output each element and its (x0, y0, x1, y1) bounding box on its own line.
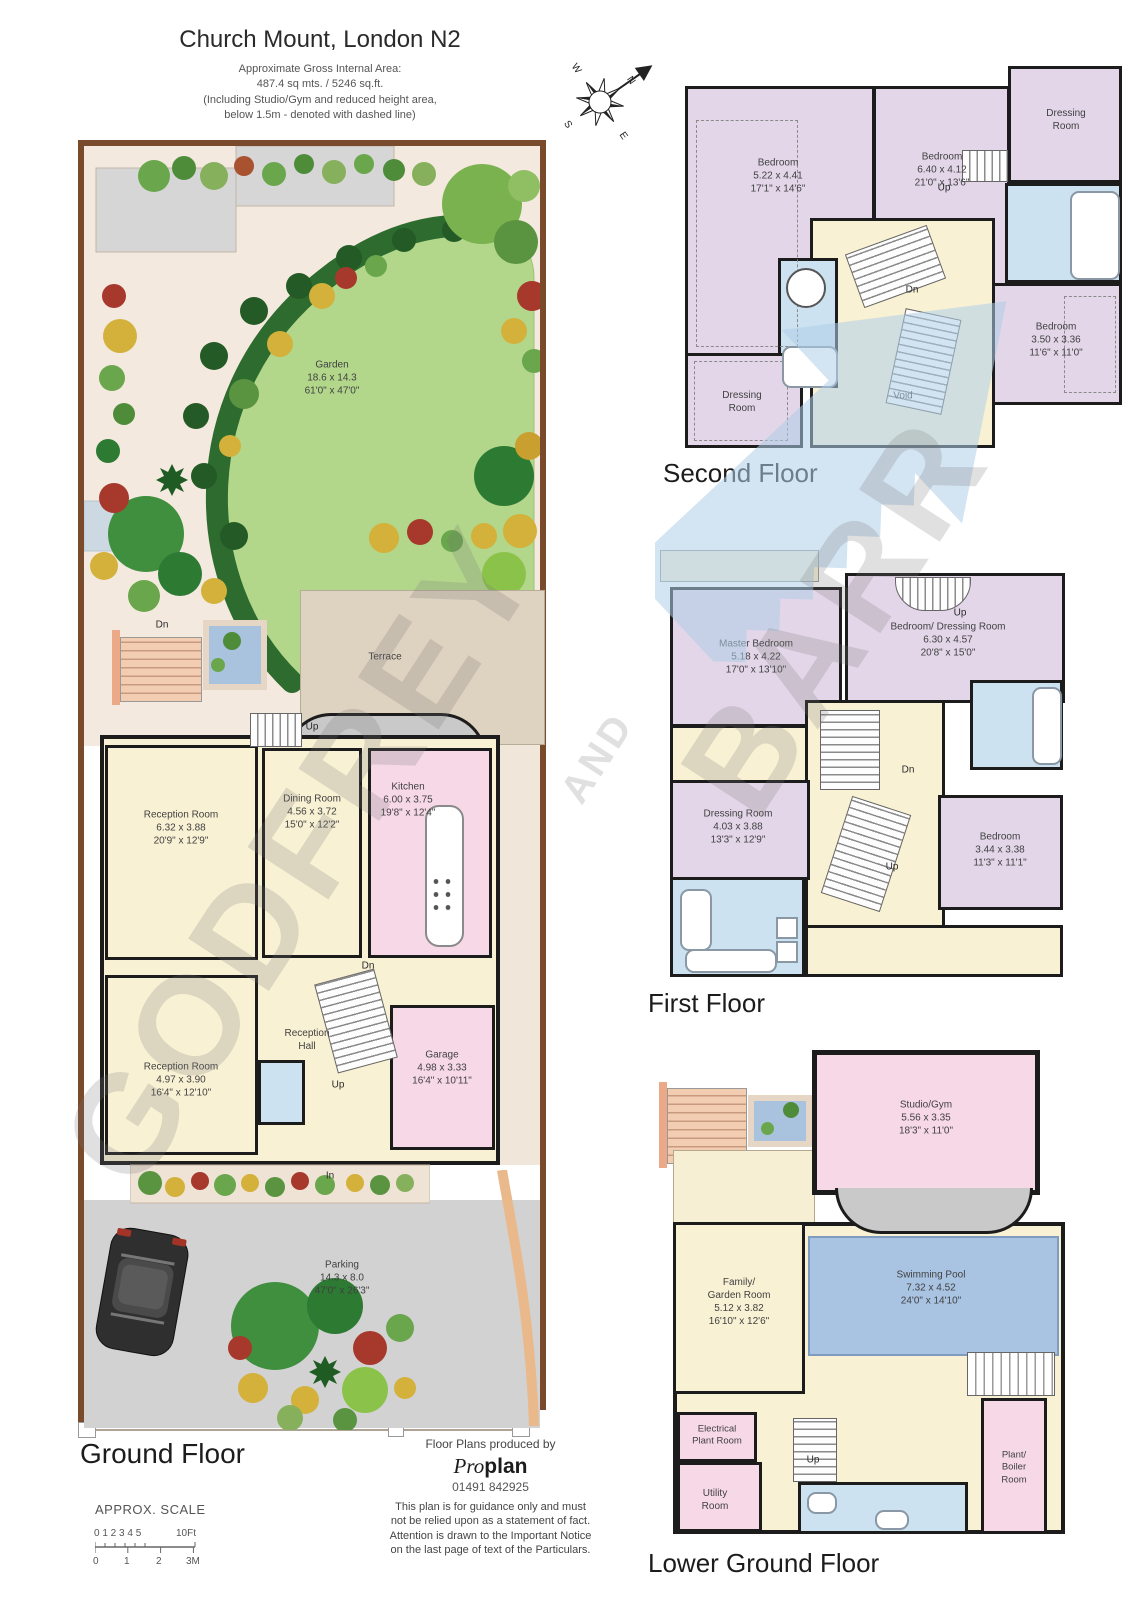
page-title: Church Mount, London N2 (140, 26, 500, 54)
bathtub-icon (782, 346, 838, 388)
room-label: Studio/Gym 5.56 x 3.35 18'3" x 11'0" (899, 1099, 953, 1138)
room-label: Bedroom 3.44 x 3.38 11'3" x 11'1" (973, 831, 1026, 870)
ground-floor-plan: Garden 18.6 x 14.3 61'0" x 47'0" Terrace… (78, 140, 546, 1438)
in-label: In (326, 1171, 334, 1182)
house-steps (250, 713, 302, 747)
spiral-stair-icon (786, 268, 826, 308)
hob-icon (430, 875, 456, 913)
room-label: Garage 4.98 x 3.33 16'4" x 10'11" (412, 1049, 472, 1088)
compass-s-label: S (561, 119, 574, 131)
room-label: Reception Room 4.97 x 3.90 16'4" x 12'10… (144, 1061, 218, 1100)
room-label: Dressing Room 4.03 x 3.88 13'3" x 12'9" (704, 808, 773, 847)
room-label: Swimming Pool 7.32 x 4.52 24'0" x 14'10" (897, 1269, 966, 1308)
floorplan-sheet: Church Mount, London N2 Approximate Gros… (0, 0, 1140, 1613)
up-label: Up (332, 1080, 345, 1091)
lower-ground-floor-plan: Studio/Gym 5.56 x 3.35 18'3" x 11'0" Fam… (645, 1040, 1065, 1545)
light-well-plant (223, 632, 241, 650)
page-subtitle: Approximate Gross Internal Area: 487.4 s… (140, 62, 500, 124)
footer-credits: Floor Plans produced by Proplan 01491 84… (368, 1437, 613, 1557)
reduced-height-line (696, 120, 798, 347)
ground-floor-label: Ground Floor (80, 1438, 245, 1470)
light-well (748, 1095, 812, 1147)
second-floor-plan: Bedroom 5.22 x 4.41 17'1" x 14'6" Bedroo… (660, 58, 1138, 454)
scale-m-2: 2 (156, 1556, 162, 1567)
bathtub-icon (1070, 191, 1120, 280)
room-label: Kitchen 6.00 x 3.75 19'8" x 12'4" (381, 781, 436, 820)
up-label: Up (886, 862, 899, 873)
balcony-strip (805, 925, 1063, 977)
room-label: Family/ Garden Room 5.12 x 3.82 16'10" x… (708, 1276, 771, 1328)
landing (670, 725, 810, 785)
compass-e-label: E (617, 130, 630, 142)
bathtub-icon (1032, 687, 1062, 765)
curved-path (478, 1170, 542, 1430)
scale-m-3: 3M (186, 1556, 200, 1567)
produced-by-label: Floor Plans produced by (368, 1437, 613, 1451)
light-well-plant (761, 1122, 774, 1135)
room-label: Bedroom/ Dressing Room 6.30 x 4.57 20'8"… (853, 621, 1043, 660)
dn-label: Dn (362, 961, 375, 972)
patio-area (236, 146, 394, 206)
proplan-logo-plan: plan (484, 1455, 527, 1478)
terrace-label: Terrace (368, 651, 401, 664)
pool-steps (967, 1352, 1055, 1396)
canopy (660, 550, 819, 582)
second-floor-label: Second Floor (663, 458, 818, 489)
sink-icon (776, 941, 798, 963)
room-reception-1 (105, 745, 258, 960)
up-label: Up (954, 608, 967, 619)
sink-icon (776, 917, 798, 939)
room-label: Reception Hall (284, 1027, 329, 1053)
compass-rose-icon: N E S W (545, 38, 665, 148)
garden-steps (120, 637, 202, 702)
room-label: Dressing Room (722, 389, 761, 415)
sink-icon (807, 1492, 837, 1514)
lower-terrace (673, 1150, 815, 1224)
scale-m-1: 1 (124, 1556, 130, 1567)
bow-window (835, 1188, 1033, 1234)
room-label: Bedroom 5.22 x 4.41 17'1" x 14'6" (751, 157, 806, 196)
light-well-plant (783, 1102, 799, 1118)
room-wc (258, 1060, 305, 1125)
void-label: Void (893, 390, 912, 403)
up-label: Up (807, 1455, 820, 1466)
sink-icon (875, 1510, 909, 1530)
watermark-and: AND (552, 704, 643, 811)
scale-label: APPROX. SCALE (95, 1502, 206, 1517)
bathtub-icon (680, 889, 712, 951)
light-well (203, 620, 267, 690)
room-dining (262, 748, 362, 958)
light-well-plant (211, 658, 225, 672)
scale-ft-end: 10Ft (176, 1528, 196, 1539)
stairs (820, 710, 880, 790)
external-stair-rail (659, 1082, 667, 1168)
proplan-logo-pro: Pro (454, 1454, 485, 1478)
dn-label: Dn (906, 285, 919, 296)
room-label: Plant/ Boiler Room (1001, 1449, 1026, 1486)
proplan-logo: Proplan (368, 1454, 613, 1479)
side-path (496, 745, 540, 1165)
room-label: Reception Room 6.32 x 3.88 20'9" x 12'9" (144, 809, 218, 848)
up-label: Up (938, 183, 951, 194)
room-label: Dining Room 4.56 x 3.72 15'0" x 12'2" (283, 793, 341, 832)
lower-ground-floor-label: Lower Ground Floor (648, 1548, 879, 1579)
room-label: Utility Room (702, 1487, 729, 1513)
scale-m-0: 0 (93, 1556, 99, 1567)
dn-label: Dn (156, 620, 169, 631)
first-floor-plan: Master Bedroom 5.18 x 4.22 17'0" x 13'10… (640, 545, 1068, 985)
garden-label: Garden 18.6 x 14.3 61'0" x 47'0" (305, 359, 360, 398)
phone-number: 01491 842925 (368, 1480, 613, 1494)
up-label: Up (306, 722, 319, 733)
room-label: Bedroom 3.50 x 3.36 11'6" x 11'0" (1029, 321, 1082, 360)
first-floor-label: First Floor (648, 988, 765, 1019)
dn-label: Dn (902, 765, 915, 776)
stairs (793, 1418, 837, 1482)
garden-steps-rail (112, 630, 120, 705)
parking-label: Parking 14.3 x 8.0 47'0" x 26'3" (315, 1259, 370, 1298)
bathtub-icon (685, 949, 777, 973)
scale-bar (95, 1542, 201, 1556)
front-flower-bed (130, 1163, 430, 1205)
room-label: Electrical Plant Room (692, 1424, 742, 1449)
disclaimer-text: This plan is for guidance only and must … (368, 1500, 613, 1557)
room-label: Dressing Room (1046, 107, 1085, 133)
scale-ft-numbers: 0 1 2 3 4 5 (94, 1528, 141, 1539)
room-label: Master Bedroom 5.18 x 4.22 17'0" x 13'10… (719, 638, 793, 677)
compass-w-label: W (569, 62, 584, 77)
